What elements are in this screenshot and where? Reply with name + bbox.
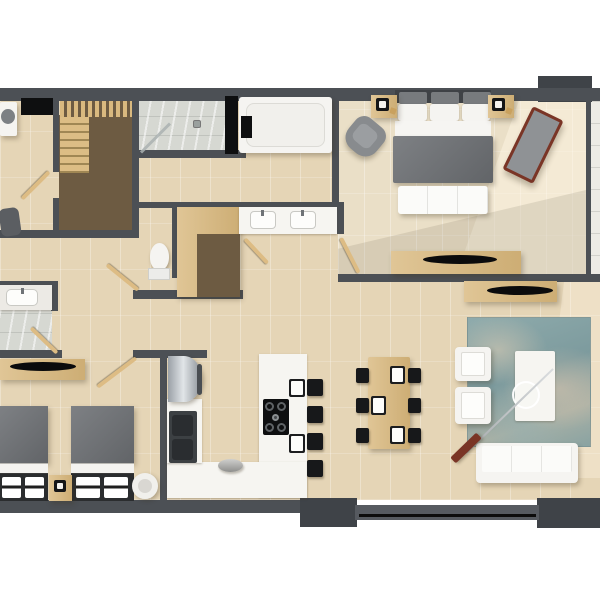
twin-bed-right-duvet <box>71 406 134 463</box>
bar-stool-2 <box>307 406 323 423</box>
twin-table-lamp <box>54 480 66 492</box>
foot-bench <box>398 186 488 214</box>
master-pillow-2 <box>430 104 459 121</box>
floor-plan-canvas <box>0 0 600 600</box>
kitchen-sink-basin-2 <box>172 439 193 460</box>
stairs-lower-flight <box>60 117 89 173</box>
kitchen-sink-basin-1 <box>172 415 193 436</box>
living-armchair-2-cushion <box>461 392 485 419</box>
wall-laundry-right-lower <box>53 198 59 232</box>
floor-second-bathroom <box>0 308 52 352</box>
wall-bottom-right-block-left <box>300 498 357 527</box>
round-pouf <box>132 473 158 499</box>
place-setting-3 <box>390 426 405 444</box>
master-duvet <box>393 136 493 183</box>
master-sheet-band <box>395 121 491 136</box>
bath-caddy <box>241 116 252 138</box>
wall-bath2-right <box>51 281 58 311</box>
bar-stool-3 <box>307 433 323 450</box>
wall-bottom-left <box>0 500 307 513</box>
bar-stool-4 <box>307 460 323 477</box>
toilet-bowl <box>150 243 169 270</box>
utility-sink <box>0 207 22 238</box>
shower-drain <box>193 120 201 128</box>
twin-bed-right-pillow-1 <box>76 477 100 498</box>
place-setting-1 <box>390 366 405 384</box>
twin-bed-left-pillow-2 <box>25 477 44 498</box>
shower-partition <box>225 96 238 154</box>
waste-bin <box>218 459 243 472</box>
dining-chair-1 <box>356 368 369 383</box>
vanity-faucet-right <box>301 210 304 216</box>
bathtub-basin <box>246 103 325 147</box>
wall-stairs-right <box>132 93 139 237</box>
sliding-glass-door <box>355 505 539 520</box>
hob-burner-2 <box>277 402 286 411</box>
sofa-cushions <box>482 446 572 472</box>
wall-balcony <box>586 98 591 279</box>
twin-curved-tv <box>10 362 76 371</box>
twin-bed-right-sheet <box>71 463 134 474</box>
toilet-tank <box>148 268 170 280</box>
hob-burner-4 <box>277 423 286 432</box>
hob-dial <box>272 414 279 421</box>
place-setting-2 <box>371 396 386 415</box>
twin-bed-left-pillow-1 <box>2 477 21 498</box>
washing-machine-door <box>1 109 15 124</box>
twin-bed-left-duvet <box>0 406 48 463</box>
wall-bathroom-bedroom <box>332 98 339 204</box>
wall-vanity-right <box>336 202 344 234</box>
fridge-handle <box>197 364 202 395</box>
bar-stool-1 <box>307 379 323 396</box>
table-lamp-right <box>492 98 505 111</box>
dining-chair-2 <box>356 398 369 413</box>
wall-kitchen-west <box>160 352 167 500</box>
master-curved-tv <box>423 255 497 264</box>
twin-bed-right-pillow-2 <box>104 477 128 498</box>
living-armchair-1-cushion <box>461 352 485 376</box>
vanity-faucet-left <box>261 210 264 216</box>
sliding-door-glass-line <box>359 514 536 517</box>
laundry-black-counter <box>21 98 53 115</box>
master-pillow-1 <box>398 104 427 121</box>
floor-balcony <box>591 100 600 278</box>
wall-bottom-right-block-right <box>537 498 600 528</box>
headboard-cushion-3 <box>463 92 491 104</box>
hob-burner-3 <box>265 423 274 432</box>
twin-bed-left-sheet <box>0 463 48 474</box>
bath2-faucet <box>21 288 24 294</box>
dining-chair-3 <box>356 428 369 443</box>
dining-chair-4 <box>408 368 421 383</box>
living-curved-tv <box>487 286 553 295</box>
hob-burner-1 <box>265 402 274 411</box>
master-pillow-3 <box>462 104 490 121</box>
island-place-setting-2 <box>289 434 305 453</box>
island-place-setting-1 <box>289 379 305 397</box>
wall-laundry-right-upper <box>53 100 59 172</box>
headboard-cushion-2 <box>431 92 459 104</box>
floor-shower-room <box>138 93 225 155</box>
wardrobe-interior <box>197 234 240 297</box>
table-lamp-left <box>376 98 389 111</box>
dining-chair-6 <box>408 428 421 443</box>
headboard-cushion-1 <box>399 92 427 104</box>
dining-chair-5 <box>408 398 421 413</box>
